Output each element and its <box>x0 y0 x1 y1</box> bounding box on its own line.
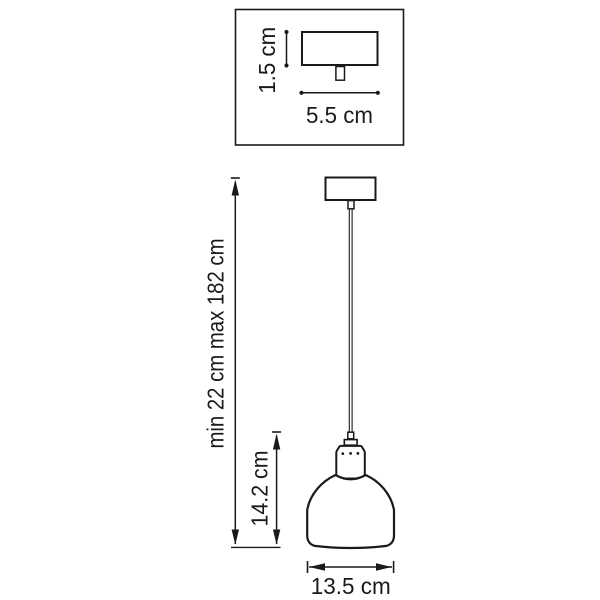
svg-text:5.5 cm: 5.5 cm <box>306 102 373 128</box>
svg-text:1.5 cm: 1.5 cm <box>254 27 280 94</box>
svg-text:13.5 cm: 13.5 cm <box>311 573 391 599</box>
svg-text:min 22 cm max 182 cm: min 22 cm max 182 cm <box>203 239 229 449</box>
svg-text:14.2 cm: 14.2 cm <box>247 451 273 527</box>
